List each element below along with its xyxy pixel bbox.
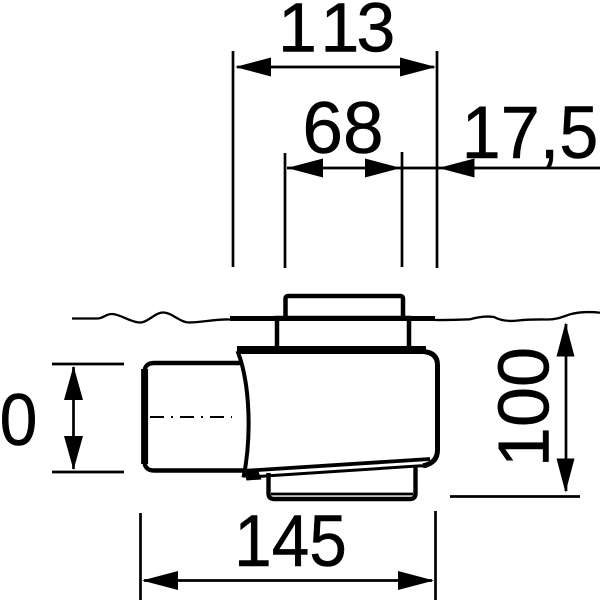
svg-text:68: 68 [302,88,383,169]
svg-text:17,5: 17,5 [462,92,599,174]
svg-text:100: 100 [485,347,565,467]
svg-text:113: 113 [278,0,395,67]
svg-text:145: 145 [234,499,347,581]
svg-text:0: 0 [0,379,37,461]
